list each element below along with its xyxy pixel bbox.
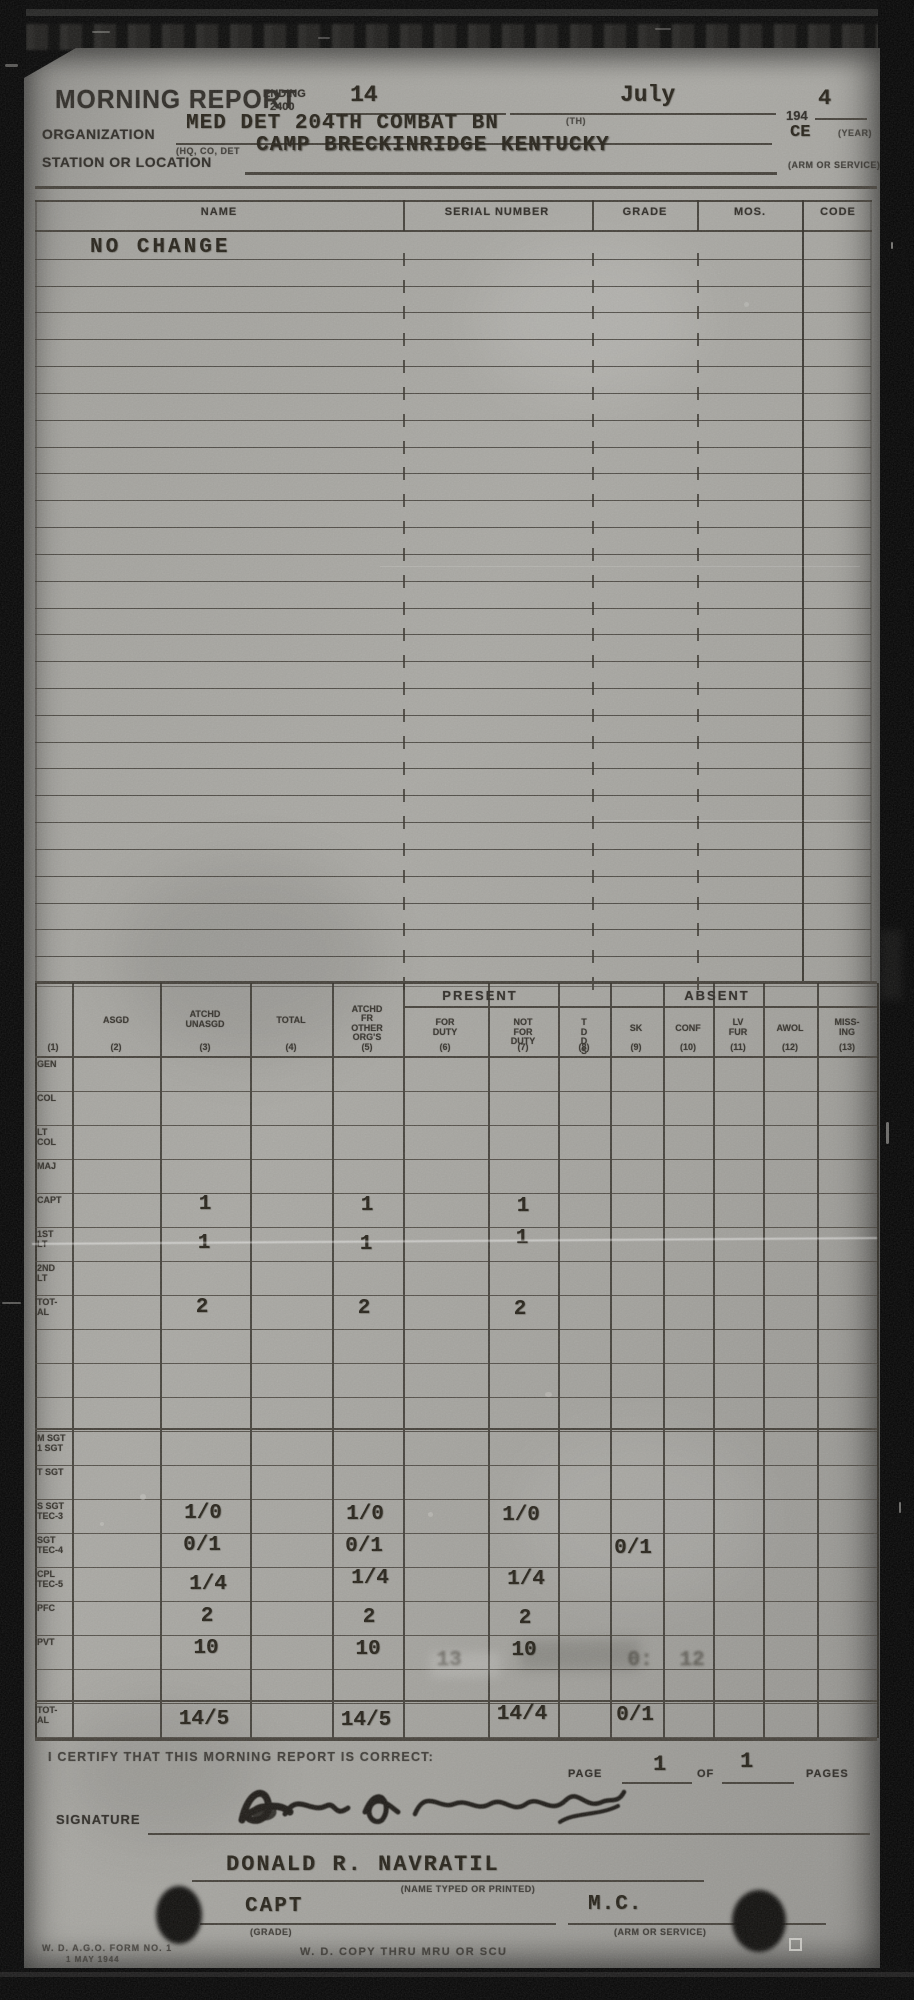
stats-section-rule	[35, 1428, 877, 1430]
microfilm-frame: MORNING REPORT ENDING 2400 14 July 194 4…	[0, 0, 914, 2000]
roster-row	[35, 742, 871, 770]
stats-cell-value: 2	[519, 1608, 532, 1630]
station-value: CAMP BRECKINRIDGE KENTUCKY	[256, 134, 610, 157]
stats-column-number: (11)	[730, 1043, 746, 1053]
stats-column-label: ATCHD UNASGD	[185, 1010, 224, 1029]
stats-row-rule	[35, 1091, 877, 1093]
roster-col-grade: GRADE	[623, 206, 668, 218]
roster-row	[35, 929, 871, 957]
frame-mark	[789, 1938, 802, 1951]
roster-col-serial: SERIAL NUMBER	[445, 206, 549, 218]
stats-column-line	[332, 983, 334, 1738]
roster-row	[35, 447, 871, 475]
roster-row	[35, 259, 871, 287]
film-speck	[318, 37, 330, 39]
stats-row-rule	[35, 1703, 877, 1705]
roster-row	[35, 393, 871, 421]
stats-column-line	[663, 983, 665, 1738]
report-year-value: 4	[818, 86, 831, 111]
film-speck	[886, 1122, 889, 1144]
wear-speck	[140, 1494, 146, 1500]
stats-cell-value: 10	[193, 1638, 218, 1660]
stats-row-rule	[35, 1465, 877, 1467]
roster-entry: NO CHANGE	[90, 236, 230, 259]
paper-patch	[520, 1430, 760, 1600]
roster-row	[35, 608, 871, 636]
typed-name-caption: (NAME TYPED OR PRINTED)	[401, 1884, 536, 1894]
stats-cell-value: 0/1	[616, 1705, 654, 1727]
stats-column-label: AWOL	[777, 1024, 804, 1034]
stats-column-line	[877, 983, 879, 1738]
stats-column-line	[558, 983, 560, 1738]
stats-column-number: (9)	[631, 1043, 642, 1053]
roster-row	[35, 473, 871, 501]
roster-row	[35, 822, 871, 850]
stats-row-label: MAJ	[37, 1162, 71, 1172]
stats-cell-value: 1/0	[502, 1505, 540, 1527]
year-printed: 194	[786, 108, 808, 123]
stats-cell-smudge: 12	[679, 1650, 704, 1672]
roster-row	[35, 554, 871, 582]
wear-speck	[100, 1522, 104, 1526]
stats-row-rule	[35, 1295, 877, 1297]
stats-column-label: SK	[630, 1024, 643, 1034]
stats-column-label: TOTAL	[276, 1016, 305, 1026]
stats-row-label: M SGT 1 SGT	[37, 1434, 71, 1453]
report-month-value: July	[620, 82, 675, 108]
month-blank-line	[510, 113, 776, 115]
stats-cell-value: 14/5	[179, 1709, 229, 1731]
stats-row-label: S SGT TEC-3	[37, 1502, 71, 1521]
grade-value: CAPT	[245, 1895, 303, 1918]
stats-cell-value: 1	[360, 1234, 373, 1256]
stats-column-number: (10)	[680, 1043, 696, 1053]
page-blank-line	[622, 1782, 692, 1784]
stats-cell-value: 0/1	[345, 1536, 383, 1558]
stats-row-rule	[35, 1193, 877, 1195]
stats-column-number: (2)	[111, 1043, 122, 1053]
stats-column-number: (13)	[839, 1043, 855, 1053]
film-speck	[891, 242, 893, 249]
stats-column-number: (8)	[579, 1043, 590, 1053]
film-streak	[0, 9, 914, 16]
form-number: W. D. A.G.O. FORM NO. 1	[42, 1943, 172, 1953]
stats-cell-value: 14/5	[341, 1710, 391, 1732]
roster-row	[35, 634, 871, 662]
stats-row-rule	[35, 1363, 877, 1365]
stats-column-line	[610, 983, 612, 1738]
stats-column-label: MISS- ING	[834, 1018, 859, 1037]
roster-header-divider	[403, 200, 405, 231]
stats-row-label: SGT TEC-4	[37, 1536, 71, 1555]
stats-row-label: CPL TEC-5	[37, 1570, 71, 1589]
roster-row	[35, 876, 871, 904]
stats-cell-value: 1	[198, 1233, 211, 1255]
form-date: 1 MAY 1944	[66, 1955, 120, 1964]
stats-column-number: (6)	[440, 1043, 451, 1053]
stats-column-line	[160, 983, 162, 1738]
stats-column-line	[72, 983, 74, 1738]
stats-header-rule	[35, 1056, 877, 1058]
roster-header-top-rule	[35, 200, 872, 202]
stats-row-label: 1ST LT	[37, 1230, 71, 1249]
stats-column-number: (1)	[48, 1043, 59, 1053]
film-speck	[5, 64, 18, 67]
stats-row-label: T SGT	[37, 1468, 71, 1478]
roster-row	[35, 527, 871, 555]
stats-column-line	[713, 983, 715, 1738]
pages-value: 1	[740, 1749, 753, 1774]
stats-row-rule	[35, 1329, 877, 1331]
stats-cell-value: 2	[201, 1606, 214, 1628]
stats-cell-value: 10	[355, 1639, 380, 1661]
arm-service-caption: (ARM OR SERVICE)	[788, 160, 880, 170]
stats-column-label: ATCHD FR OTHER ORG'S	[351, 1005, 383, 1043]
stats-row-rule	[35, 1125, 877, 1127]
roster-top-rule	[35, 186, 877, 189]
signature-label: SIGNATURE	[56, 1812, 141, 1827]
stats-row-label: PFC	[37, 1604, 71, 1614]
stats-cell-value: 14/4	[497, 1704, 547, 1726]
roster-row	[35, 715, 871, 743]
stats-cell-value: 1/4	[351, 1568, 389, 1590]
stats-cell-value: 0/1	[183, 1535, 221, 1557]
present-group-label: PRESENT	[442, 988, 517, 1003]
film-blotch	[880, 930, 902, 1000]
pages-blank-line	[722, 1782, 794, 1784]
stats-cell-value: 1/0	[184, 1503, 222, 1525]
film-speck	[655, 28, 671, 30]
of-label: OF	[697, 1768, 714, 1780]
roster-row	[35, 956, 871, 984]
film-speck	[899, 1502, 901, 1513]
typed-name: DONALD R. NAVRATIL	[226, 1852, 500, 1877]
roster-header-divider	[697, 200, 699, 231]
arm-service-value: CE	[790, 123, 810, 142]
film-edge-right	[878, 0, 914, 2000]
ink-smear	[520, 1640, 640, 1670]
stats-row-label: COL	[37, 1094, 71, 1104]
signature-line	[148, 1833, 870, 1835]
stats-row-label: TOT- AL	[37, 1298, 71, 1317]
stats-cell-value: 1	[517, 1196, 530, 1218]
film-streak	[0, 1972, 914, 1977]
group-underline	[403, 1006, 877, 1008]
stats-column-number: (7)	[518, 1043, 529, 1053]
stats-row-rule	[35, 1635, 877, 1637]
stats-row-label: CAPT	[37, 1196, 71, 1206]
wear-speck	[744, 302, 749, 307]
roster-row	[35, 313, 871, 341]
punch-hole-right	[732, 1890, 786, 1952]
stats-column-number: (4)	[286, 1043, 297, 1053]
roster-row	[35, 500, 871, 528]
roster-row	[35, 420, 871, 448]
roster-col-name: NAME	[201, 206, 237, 218]
stats-column-number: (5)	[362, 1043, 373, 1053]
arm-caption: (ARM OR SERVICE)	[614, 1927, 706, 1937]
typed-name-line	[192, 1880, 704, 1882]
organization-label: ORGANIZATION	[42, 126, 155, 142]
stats-row-rule	[35, 1227, 877, 1229]
stats-cell-value: 1/4	[507, 1569, 545, 1591]
stats-column-label: CONF	[675, 1024, 701, 1034]
stats-cell-value: 0/1	[614, 1538, 652, 1560]
stats-section-rule	[35, 1700, 877, 1702]
stats-bottom-rule	[35, 1738, 877, 1741]
stats-row-label: LT COL	[37, 1128, 71, 1147]
page-value: 1	[653, 1752, 666, 1777]
roster-row	[35, 339, 871, 367]
stats-column-line	[763, 983, 765, 1738]
stats-column-number: (3)	[200, 1043, 211, 1053]
absent-group-label: ABSENT	[684, 988, 749, 1003]
film-scratch	[380, 566, 860, 567]
stats-cell-value: 1/0	[346, 1504, 384, 1526]
stats-row-rule	[35, 1601, 877, 1603]
stats-row-rule	[35, 1533, 877, 1535]
stats-column-line	[403, 983, 405, 1738]
copy-note: W. D. COPY THRU MRU OR SCU	[300, 1946, 507, 1958]
stats-cell-value: 2	[196, 1297, 209, 1319]
stats-row-label: TOT- AL	[37, 1706, 71, 1725]
wear-patch	[430, 1652, 500, 1678]
roster-header-divider	[592, 200, 594, 231]
year-caption: (YEAR)	[838, 128, 872, 138]
roster-col-code: CODE	[820, 206, 856, 218]
stats-column-line	[488, 983, 490, 1738]
punch-hole-left	[156, 1886, 202, 1944]
stats-row-rule	[35, 1397, 877, 1399]
film-edge-left	[0, 0, 26, 2000]
stats-cell-value: 2	[358, 1298, 371, 1320]
stats-row-label: 2ND LT	[37, 1264, 71, 1283]
stats-cell-value: 2	[514, 1299, 527, 1321]
stats-row-label: GEN	[37, 1060, 71, 1070]
ending-label: ENDING	[263, 88, 306, 100]
handwritten-signature	[230, 1762, 630, 1840]
pages-label: PAGES	[806, 1768, 849, 1780]
organization-sup-caption: (TH)	[566, 116, 586, 126]
station-blank-line	[245, 172, 777, 175]
stats-column-line	[250, 983, 252, 1738]
stats-column-number: (12)	[782, 1043, 798, 1053]
grade-caption: (GRADE)	[250, 1927, 292, 1937]
film-speck	[2, 1302, 21, 1304]
stats-cell-value: 1	[361, 1195, 374, 1217]
stats-column-label: FOR DUTY	[433, 1018, 458, 1037]
stats-cell-value: 1	[199, 1194, 212, 1216]
station-label: STATION OR LOCATION	[42, 154, 212, 170]
arm-line	[568, 1923, 826, 1925]
stats-row-rule	[35, 1159, 877, 1161]
arm-value: M.C.	[588, 1893, 642, 1916]
stats-row-label: PVT	[37, 1638, 71, 1648]
film-scratch	[600, 820, 870, 821]
stats-cell-value: 1/4	[189, 1574, 227, 1596]
form-title: MORNING REPORT	[55, 84, 297, 115]
roster-row	[35, 661, 871, 689]
roster-col-mos: MOS.	[734, 206, 766, 218]
grade-line	[200, 1923, 556, 1925]
organization-value: MED DET 204TH COMBAT BN	[186, 112, 499, 135]
wear-speck	[428, 1512, 433, 1517]
roster-row	[35, 366, 871, 394]
stats-row-rule	[35, 1499, 877, 1501]
roster-row	[35, 581, 871, 609]
stats-row-rule	[35, 1431, 877, 1433]
film-speck	[92, 31, 110, 33]
stats-row-rule	[35, 1261, 877, 1263]
roster-row	[35, 849, 871, 877]
roster-row	[35, 795, 871, 823]
stats-column-label: LV FUR	[729, 1018, 748, 1037]
stats-cell-value: 2	[363, 1607, 376, 1629]
stats-row-rule	[35, 1567, 877, 1569]
wear-speck	[545, 1392, 552, 1397]
year-blank-line	[815, 118, 867, 120]
film-scratch-band	[0, 24, 914, 50]
roster-row	[35, 286, 871, 314]
roster-row	[35, 768, 871, 796]
report-day-value: 14	[350, 82, 378, 108]
stats-column-label: ASGD	[103, 1016, 129, 1026]
stats-column-line	[817, 983, 819, 1738]
roster-row	[35, 903, 871, 931]
roster-row	[35, 688, 871, 716]
